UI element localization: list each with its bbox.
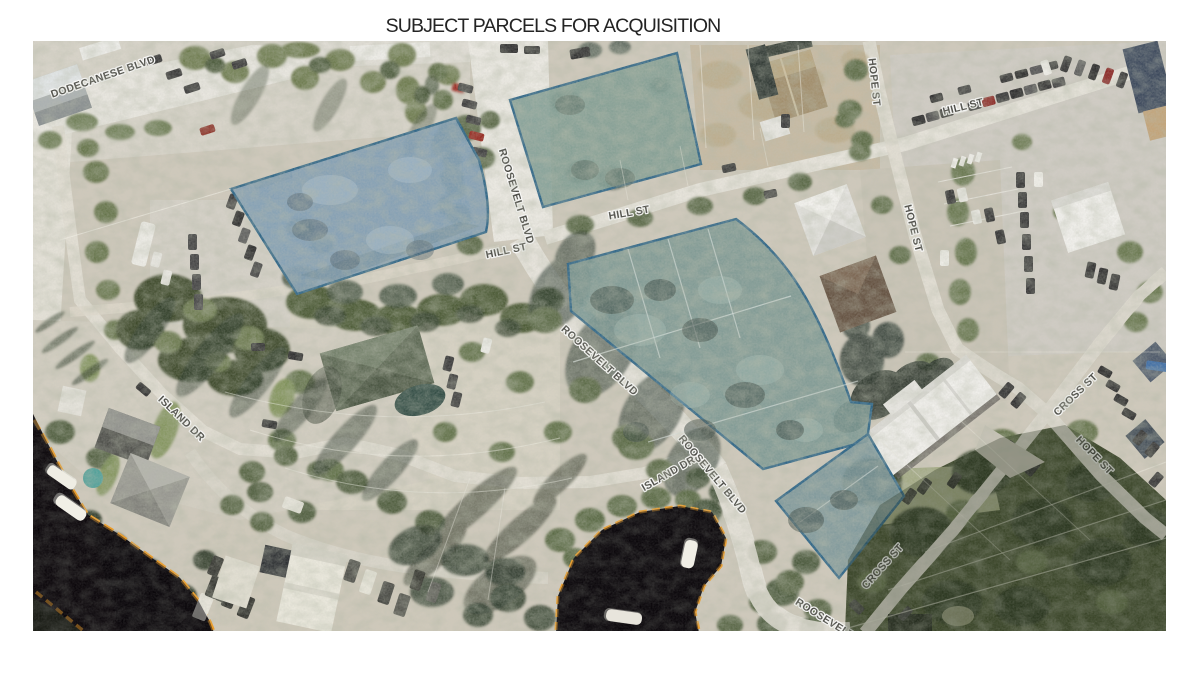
svg-text:SUBJECT PARCELS FOR ACQUISITIO: SUBJECT PARCELS FOR ACQUISITION	[386, 15, 721, 37]
